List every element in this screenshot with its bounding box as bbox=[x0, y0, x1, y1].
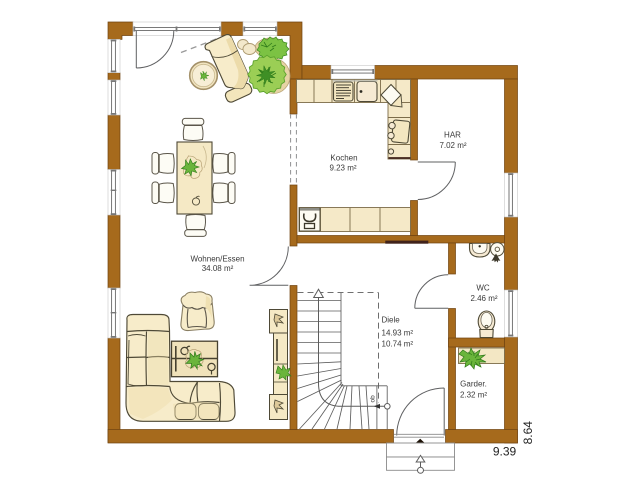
svg-text:HAR: HAR bbox=[444, 131, 461, 140]
svg-text:8.64: 8.64 bbox=[521, 421, 535, 445]
svg-text:Wohnen/Essen: Wohnen/Essen bbox=[190, 255, 244, 264]
svg-text:14.93 m²: 14.93 m² bbox=[382, 329, 414, 338]
svg-text:2.32 m²: 2.32 m² bbox=[460, 391, 487, 400]
svg-text:9.23 m²: 9.23 m² bbox=[329, 164, 356, 173]
svg-text:WC: WC bbox=[476, 284, 490, 293]
svg-text:10.74 m²: 10.74 m² bbox=[382, 340, 414, 349]
svg-text:34.08 m²: 34.08 m² bbox=[202, 264, 234, 273]
svg-text:7.02 m²: 7.02 m² bbox=[439, 141, 466, 150]
svg-text:Diele: Diele bbox=[382, 316, 401, 325]
svg-text:Garder.: Garder. bbox=[460, 380, 487, 389]
svg-text:9.39: 9.39 bbox=[493, 445, 517, 459]
svg-text:ob: ob bbox=[370, 395, 377, 403]
svg-text:Kochen: Kochen bbox=[330, 154, 357, 163]
svg-text:2.46 m²: 2.46 m² bbox=[470, 294, 497, 303]
